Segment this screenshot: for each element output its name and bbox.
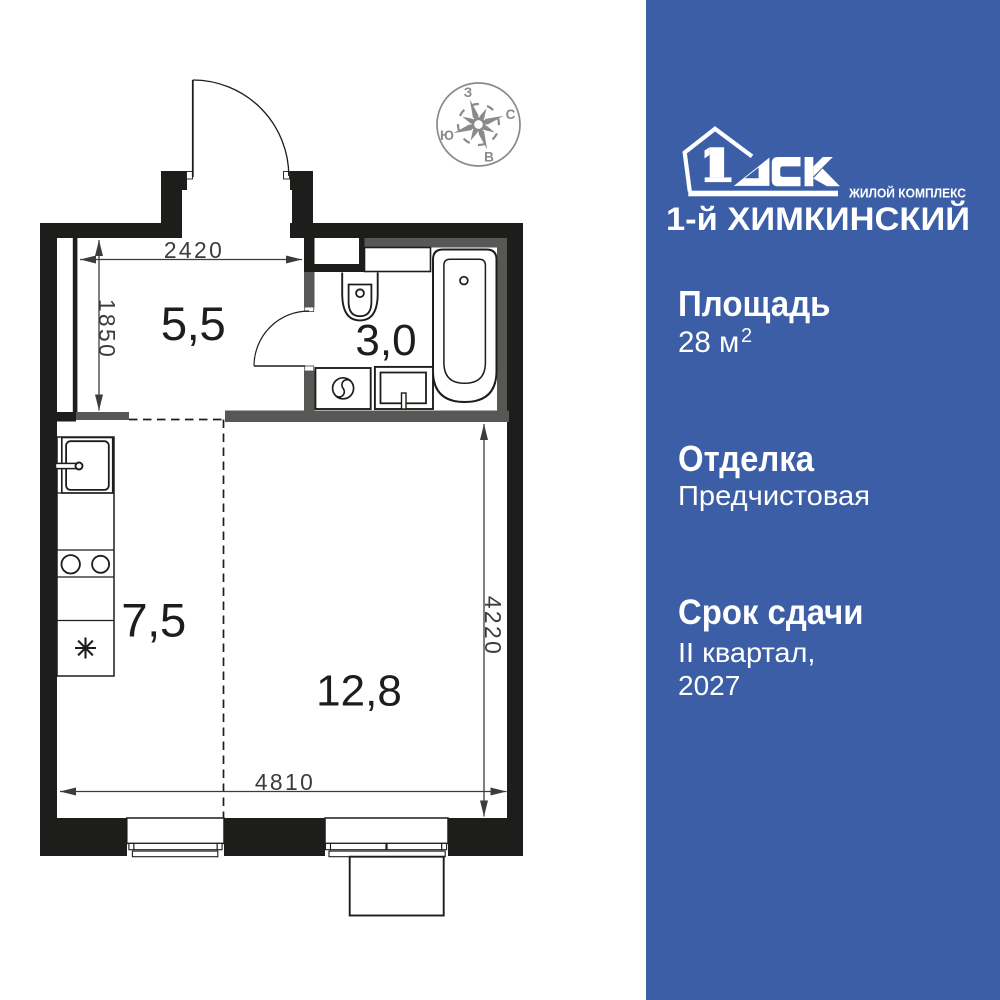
svg-text:1850: 1850	[94, 299, 120, 359]
svg-text:12,8: 12,8	[316, 667, 402, 716]
svg-text:ЖИЛОЙ КОМПЛЕКС: ЖИЛОЙ КОМПЛЕКС	[848, 186, 966, 201]
svg-text:28 м: 28 м	[678, 326, 739, 359]
svg-text:2: 2	[741, 325, 752, 347]
svg-text:7,5: 7,5	[121, 595, 186, 648]
svg-text:Предчистовая: Предчистовая	[678, 480, 870, 511]
svg-text:В: В	[484, 150, 494, 165]
svg-text:Отделка: Отделка	[678, 438, 815, 479]
svg-text:II квартал,: II квартал,	[678, 637, 816, 668]
svg-text:З: З	[464, 85, 472, 100]
svg-text:2027: 2027	[678, 670, 740, 701]
svg-text:4810: 4810	[255, 769, 315, 795]
svg-text:4220: 4220	[480, 596, 506, 656]
svg-text:1-й ХИМКИНСКИЙ: 1-й ХИМКИНСКИЙ	[666, 201, 970, 237]
svg-text:С: С	[506, 107, 516, 122]
svg-text:3,0: 3,0	[355, 316, 416, 365]
svg-text:Ю: Ю	[440, 128, 454, 143]
svg-text:Срок сдачи: Срок сдачи	[678, 593, 864, 632]
svg-text:5,5: 5,5	[161, 298, 226, 351]
svg-text:2420: 2420	[164, 237, 224, 263]
svg-text:Площадь: Площадь	[678, 283, 831, 324]
